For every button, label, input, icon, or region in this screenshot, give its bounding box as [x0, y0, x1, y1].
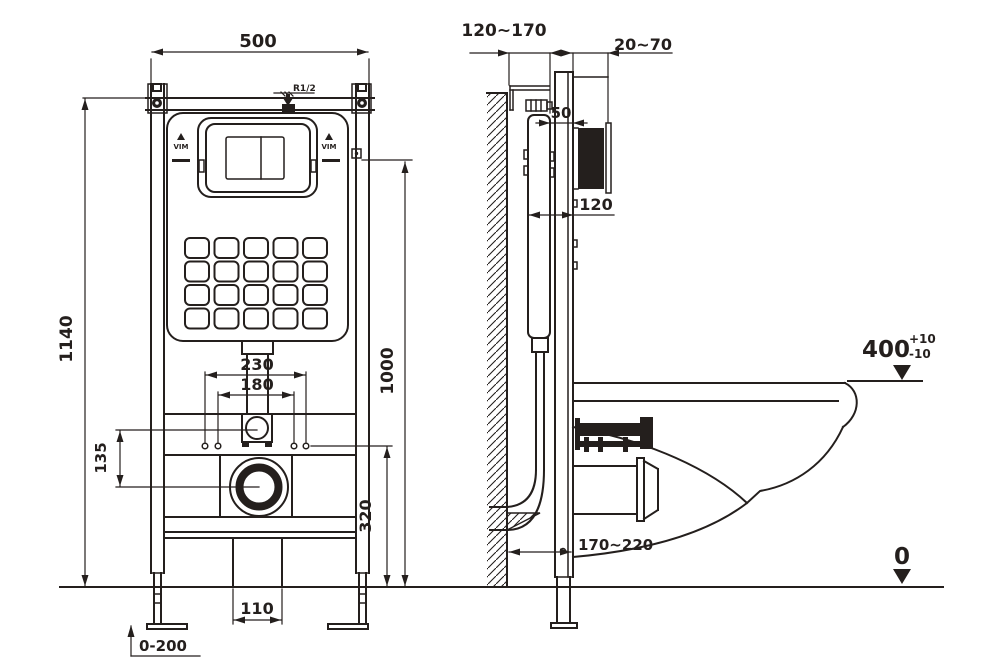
svg-text:-10: -10: [909, 347, 931, 361]
inlet-thread-label: R1/2: [293, 84, 316, 94]
svg-text:180: 180: [240, 375, 273, 394]
side-view: [487, 72, 857, 628]
svg-text:170~220: 170~220: [578, 536, 653, 554]
dim-offset-135: 135: [92, 430, 259, 487]
level-marker-icon: [893, 569, 911, 584]
svg-text:0-200: 0-200: [139, 637, 187, 655]
tank-grid: [185, 238, 327, 329]
dim-height-1140: 1140: [57, 98, 150, 586]
svg-text:320: 320: [356, 499, 375, 532]
dim-bolt-230: 230: [205, 355, 306, 442]
svg-text:0: 0: [894, 544, 910, 570]
installation-drawing: R1/2 VIM VIM: [0, 0, 1000, 667]
drawing-canvas: R1/2 VIM VIM: [0, 0, 1000, 667]
flush-plate: [206, 124, 310, 192]
brand-mark-right: VIM: [322, 133, 341, 162]
brand-label-right: VIM: [322, 143, 337, 151]
toilet-bowl: [573, 383, 857, 557]
datum-bowl-height: 400 +10 -10: [848, 332, 936, 381]
dim-outlet-110: 110: [233, 589, 282, 624]
dim-width-500: 500: [151, 31, 369, 83]
dim-drain-offset: 170~220: [509, 536, 653, 556]
flush-plate-frame: [198, 118, 317, 197]
svg-text:135: 135: [92, 442, 110, 473]
svg-text:400: 400: [862, 337, 910, 363]
svg-text:50: 50: [551, 104, 572, 122]
svg-text:1140: 1140: [57, 315, 77, 362]
svg-text:230: 230: [240, 355, 273, 374]
dim-recess-120: 120: [528, 195, 614, 219]
frame-top-bar: [146, 98, 374, 110]
level-marker-icon: [893, 365, 911, 380]
mounting-studs: [575, 417, 653, 452]
drain-stub: [573, 458, 658, 521]
side-tank: [524, 115, 554, 470]
svg-text:120: 120: [579, 195, 612, 214]
svg-text:110: 110: [240, 599, 273, 618]
svg-text:+10: +10: [909, 332, 936, 346]
svg-text:500: 500: [239, 31, 277, 52]
flush-actuator-unit: [573, 123, 611, 193]
brand-label-left: VIM: [174, 143, 189, 151]
svg-text:120~170: 120~170: [461, 21, 546, 41]
wall-bracket: [510, 86, 552, 111]
dim-bolt-180: 180: [218, 375, 294, 442]
svg-text:1000: 1000: [378, 347, 398, 394]
flush-buttons: [226, 137, 284, 179]
wall-section: [487, 93, 507, 587]
fixing-bolt-holes: [202, 443, 309, 449]
side-dimensions: 120~170 20~70 50 120 170~220 400: [461, 21, 935, 584]
brand-mark-left: VIM: [172, 133, 190, 162]
svg-text:20~70: 20~70: [614, 35, 672, 54]
flush-plate-assembly: [198, 118, 317, 197]
datum-floor: 0: [893, 544, 911, 584]
outlet-box: [233, 538, 282, 587]
frame-crossbars: [164, 414, 356, 538]
